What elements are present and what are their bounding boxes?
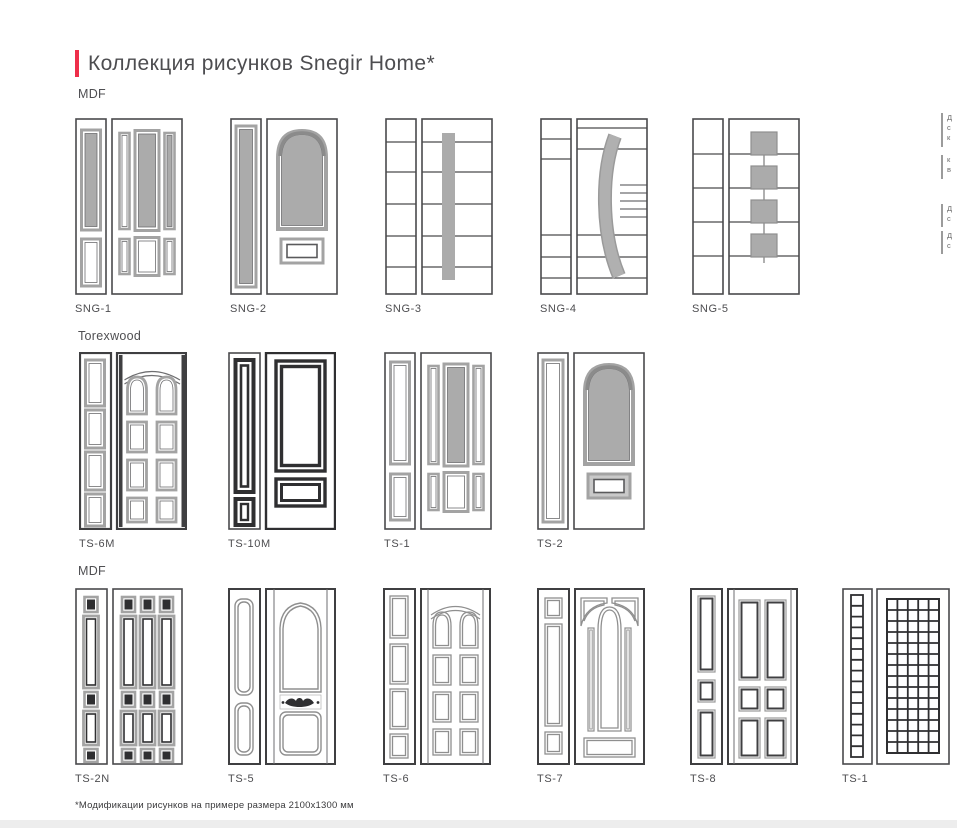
door-drawing-ts-10m bbox=[228, 352, 336, 530]
door-label: TS-6M bbox=[79, 538, 187, 550]
door-card-sng-4: SNG-4 bbox=[540, 118, 648, 315]
door-label: TS-2 bbox=[537, 538, 645, 550]
door-label: TS-1 bbox=[384, 538, 492, 550]
margin-note-fragment: с bbox=[947, 214, 957, 224]
margin-note-fragment: в bbox=[947, 165, 957, 175]
door-drawing-sng-1 bbox=[75, 118, 183, 295]
door-drawing-sng-4 bbox=[540, 118, 648, 295]
door-card-sng-2: SNG-2 bbox=[230, 118, 338, 315]
door-card-ts-1-grid: TS-1 bbox=[842, 588, 950, 785]
margin-note: Д с к bbox=[941, 113, 957, 147]
door-card-ts-2n: TS-2N bbox=[75, 588, 183, 785]
margin-note-fragment: Д bbox=[947, 231, 957, 241]
door-card-ts-2: TS-2 bbox=[537, 352, 645, 550]
margin-note: к в bbox=[941, 155, 957, 179]
door-drawing-ts-2 bbox=[537, 352, 645, 530]
door-card-ts-5: TS-5 bbox=[228, 588, 336, 785]
door-label: TS-2N bbox=[75, 773, 183, 785]
door-drawing-ts-7 bbox=[537, 588, 645, 765]
page-header: Коллекция рисунков Snegir Home* bbox=[75, 50, 435, 77]
margin-note: Д с bbox=[941, 204, 957, 227]
door-card-ts-10m: TS-10M bbox=[228, 352, 336, 550]
door-label: TS-10M bbox=[228, 538, 336, 550]
door-label: TS-8 bbox=[690, 773, 798, 785]
door-drawing-ts-6m bbox=[79, 352, 187, 530]
margin-note: Д с bbox=[941, 231, 957, 254]
door-card-ts-6: TS-6 bbox=[383, 588, 491, 785]
material-label-mdf-bottom: MDF bbox=[78, 564, 106, 578]
door-label: TS-7 bbox=[537, 773, 645, 785]
door-label: SNG-4 bbox=[540, 303, 648, 315]
door-drawing-ts-1-torexwood bbox=[384, 352, 492, 530]
material-label-torexwood: Torexwood bbox=[78, 329, 141, 343]
door-label: SNG-1 bbox=[75, 303, 183, 315]
door-card-ts-8: TS-8 bbox=[690, 588, 798, 785]
margin-note-fragment: Д bbox=[947, 113, 957, 123]
margin-note-fragment: с bbox=[947, 241, 957, 251]
door-card-sng-5: SNG-5 bbox=[692, 118, 800, 315]
catalog-page: Коллекция рисунков Snegir Home* MDF Tore… bbox=[0, 0, 957, 828]
door-label: SNG-2 bbox=[230, 303, 338, 315]
door-drawing-ts-5 bbox=[228, 588, 336, 765]
margin-note-fragment: с bbox=[947, 123, 957, 133]
bottom-divider bbox=[0, 820, 957, 828]
door-label: SNG-5 bbox=[692, 303, 800, 315]
margin-note-fragment: к bbox=[947, 133, 957, 143]
door-card-sng-3: SNG-3 bbox=[385, 118, 493, 315]
door-drawing-ts-6 bbox=[383, 588, 491, 765]
door-card-ts-7: TS-7 bbox=[537, 588, 645, 785]
door-card-ts-1-torexwood: TS-1 bbox=[384, 352, 492, 550]
door-drawing-sng-2 bbox=[230, 118, 338, 295]
page-title: Коллекция рисунков Snegir Home* bbox=[88, 52, 435, 76]
door-label: TS-6 bbox=[383, 773, 491, 785]
door-drawing-ts-1-grid bbox=[842, 588, 950, 765]
margin-note-fragment: Д bbox=[947, 204, 957, 214]
door-drawing-ts-2n bbox=[75, 588, 183, 765]
door-drawing-sng-3 bbox=[385, 118, 493, 295]
door-drawing-ts-8 bbox=[690, 588, 798, 765]
material-label-mdf-top: MDF bbox=[78, 87, 106, 101]
door-card-sng-1: SNG-1 bbox=[75, 118, 183, 315]
accent-bar bbox=[75, 50, 79, 77]
footnote: *Модификации рисунков на примере размера… bbox=[75, 800, 354, 811]
door-label: TS-5 bbox=[228, 773, 336, 785]
door-label: SNG-3 bbox=[385, 303, 493, 315]
margin-note-fragment: к bbox=[947, 155, 957, 165]
door-drawing-sng-5 bbox=[692, 118, 800, 295]
door-label: TS-1 bbox=[842, 773, 950, 785]
door-card-ts-6m: TS-6M bbox=[79, 352, 187, 550]
